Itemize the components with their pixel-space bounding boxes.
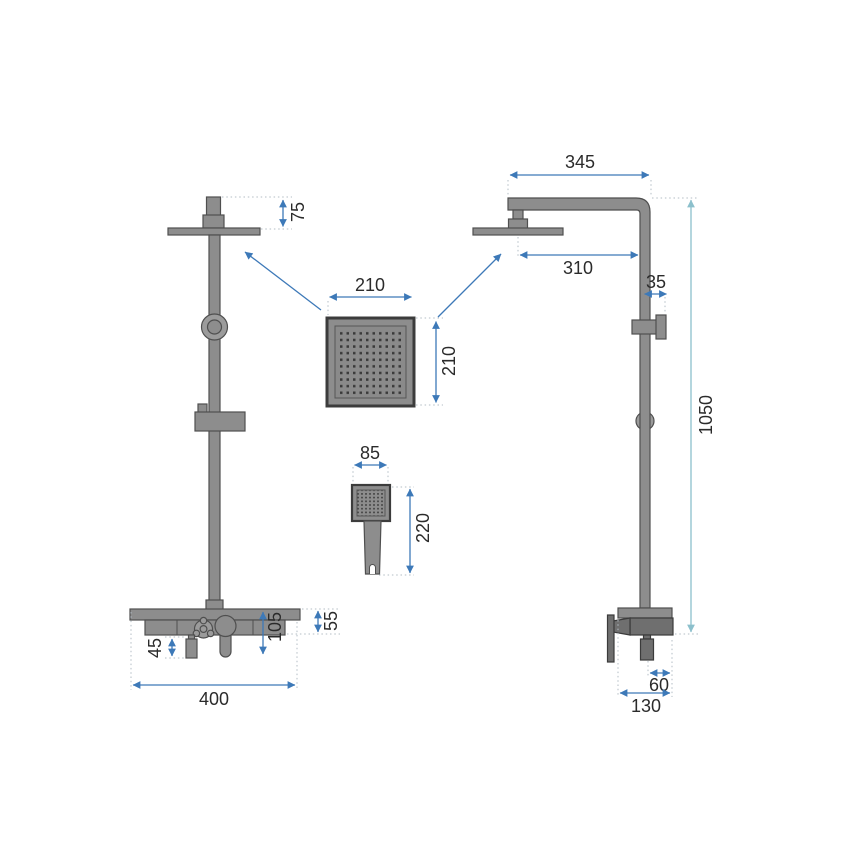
dim-arm-reach-310: 310 [518, 237, 638, 278]
front-view [130, 197, 300, 658]
dim-hand-head-width-85: 85 [353, 443, 388, 482]
front-rain-head-plate [168, 228, 260, 235]
side-mixer-body [630, 618, 673, 635]
leader-arrow-to-side-head [438, 254, 501, 317]
side-lever-wedge [613, 618, 630, 635]
leader-arrow-to-front-head [245, 252, 321, 310]
hand-shower-detail [352, 485, 390, 574]
rain-head-detail [327, 318, 414, 406]
dim-arm-span-345: 345 [508, 152, 651, 196]
hand-shower-hanger-hole [370, 565, 376, 575]
dim-mixer-drop-105: 105 [263, 612, 285, 654]
dim-label-column-height: 1050 [696, 395, 716, 435]
front-outlet [186, 639, 197, 658]
dim-label-hand-shower-length: 220 [413, 513, 433, 543]
side-rain-head-plate [473, 228, 563, 235]
dim-label-arm-span: 345 [565, 152, 595, 172]
side-wall-bracket-arm [632, 320, 657, 334]
front-head-connector-base [203, 215, 224, 228]
side-shelf-edge [618, 608, 672, 618]
side-lever-blade [608, 615, 615, 662]
rain-head-nozzle-grid [338, 329, 403, 395]
dim-head-drop-75: 75 [222, 197, 308, 229]
side-wall-bracket-flange [656, 315, 666, 339]
dim-label-outlet-offset: 60 [649, 675, 669, 695]
side-outlet [641, 639, 654, 660]
dim-label-mixer-depth: 130 [631, 696, 661, 716]
front-head-connector-top [207, 197, 221, 217]
dim-label-shelf-drop: 55 [321, 611, 341, 631]
front-slider-holder [195, 412, 245, 431]
dim-outlet-offset-60: 60 [648, 661, 670, 695]
dim-label-shelf-width: 400 [199, 689, 229, 709]
dim-label-arm-reach: 310 [563, 258, 593, 278]
technical-drawing: 75 345 310 35 1050 210 [0, 0, 868, 868]
temp-knob-center [200, 626, 207, 633]
front-lever-head [215, 616, 236, 637]
drawing-canvas: 75 345 310 35 1050 210 [0, 0, 868, 868]
dim-column-height-1050: 1050 [652, 198, 716, 634]
dim-label-wall-offset: 35 [646, 272, 666, 292]
hand-shower-nozzle-grid [357, 490, 385, 516]
side-head-stem [513, 210, 523, 219]
dim-label-rain-head-width: 210 [355, 275, 385, 295]
dim-label-outlet-drop: 45 [145, 638, 165, 658]
temp-knob-lobe-top [200, 617, 206, 623]
dim-outlet-drop-45: 45 [145, 637, 184, 658]
dim-label-mixer-drop: 105 [265, 612, 285, 642]
dim-label-rain-head-depth: 210 [439, 346, 459, 376]
dim-label-head-drop: 75 [288, 202, 308, 222]
dim-rain-head-width-210: 210 [328, 275, 412, 315]
dim-label-hand-head-width: 85 [360, 443, 380, 463]
front-diverter-knob-center [208, 320, 222, 334]
dim-rain-head-depth-210: 210 [416, 318, 459, 405]
temp-knob-lobe-right [207, 630, 213, 636]
